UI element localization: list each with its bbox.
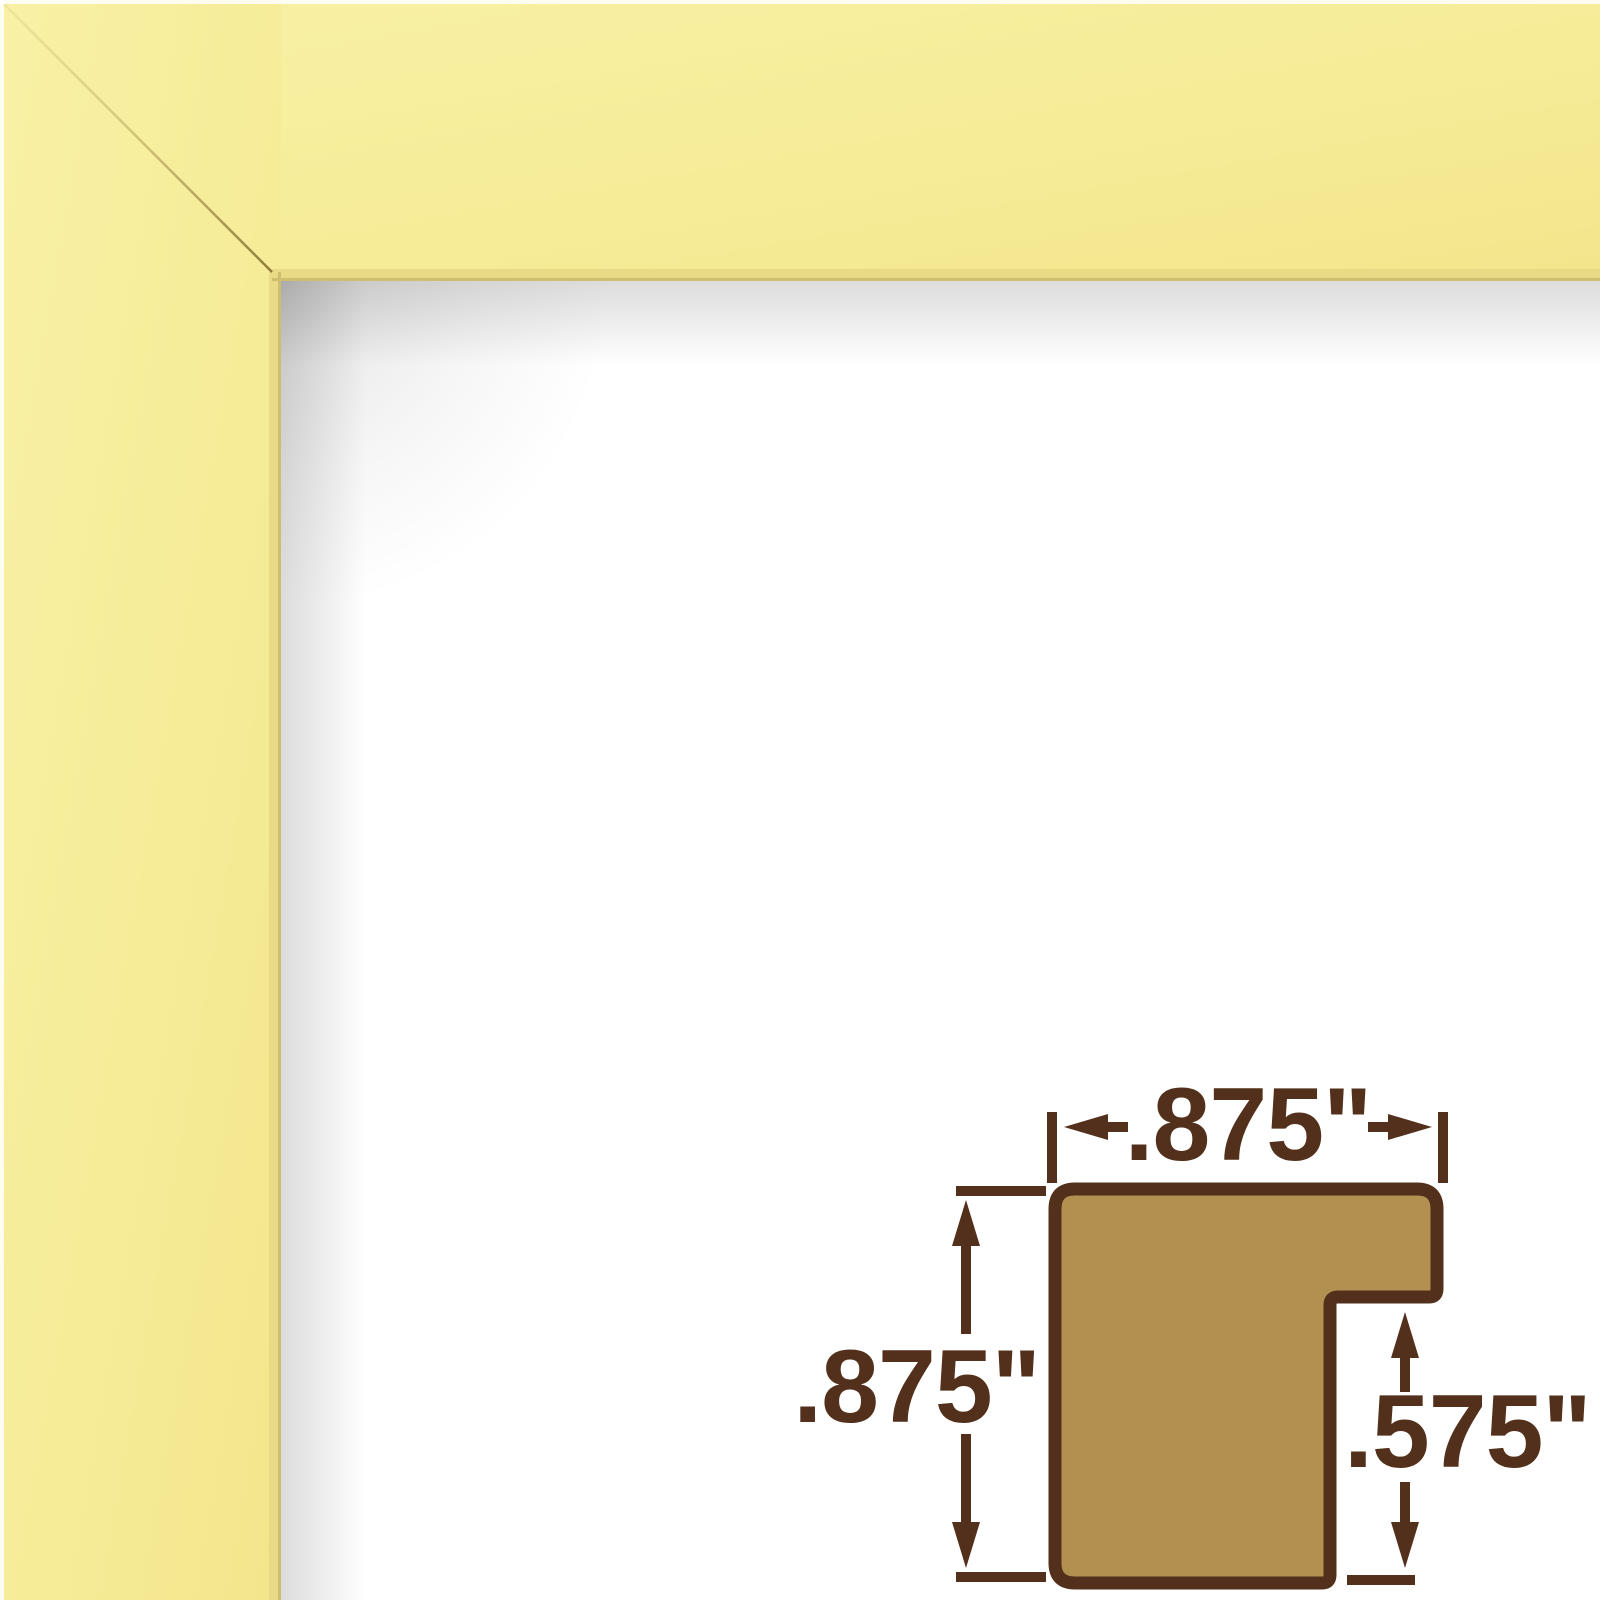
dim-height-arrow-down-shaft xyxy=(961,1434,971,1530)
dim-rabbet-arrow-down-icon xyxy=(1391,1522,1419,1568)
frame-corner-product-image: .875" .875" .575" xyxy=(0,0,1600,1600)
dim-width-arrow-right-shaft xyxy=(1368,1122,1396,1132)
dim-width: .875" xyxy=(1047,1067,1448,1183)
dim-rabbet-label: .575" xyxy=(1344,1374,1591,1490)
dim-width-tick-right xyxy=(1438,1112,1448,1183)
dim-height-tick-top xyxy=(956,1186,1046,1196)
photo-edge-top xyxy=(0,0,1600,4)
dim-width-tick-left xyxy=(1047,1112,1057,1183)
profile-diagram: .875" .875" .575" xyxy=(793,1067,1590,1585)
dim-height-tick-bottom xyxy=(956,1572,1046,1582)
frame-edge-line-left xyxy=(278,272,281,1600)
dim-width-label: .875" xyxy=(1125,1067,1372,1183)
matte-shadow-corner xyxy=(281,281,611,611)
dim-rabbet-tick-bottom xyxy=(1347,1575,1415,1585)
dim-height-label: .875" xyxy=(793,1329,1040,1445)
frame-edge-line-top xyxy=(272,278,1600,281)
frame-corner-sample-graphic: .875" .875" .575" xyxy=(0,0,1600,1600)
dim-rabbet: .575" xyxy=(1344,1312,1591,1585)
dim-height-arrow-up-shaft xyxy=(961,1238,971,1334)
photo-edge-left xyxy=(0,0,4,1600)
dim-height: .875" xyxy=(793,1186,1046,1582)
